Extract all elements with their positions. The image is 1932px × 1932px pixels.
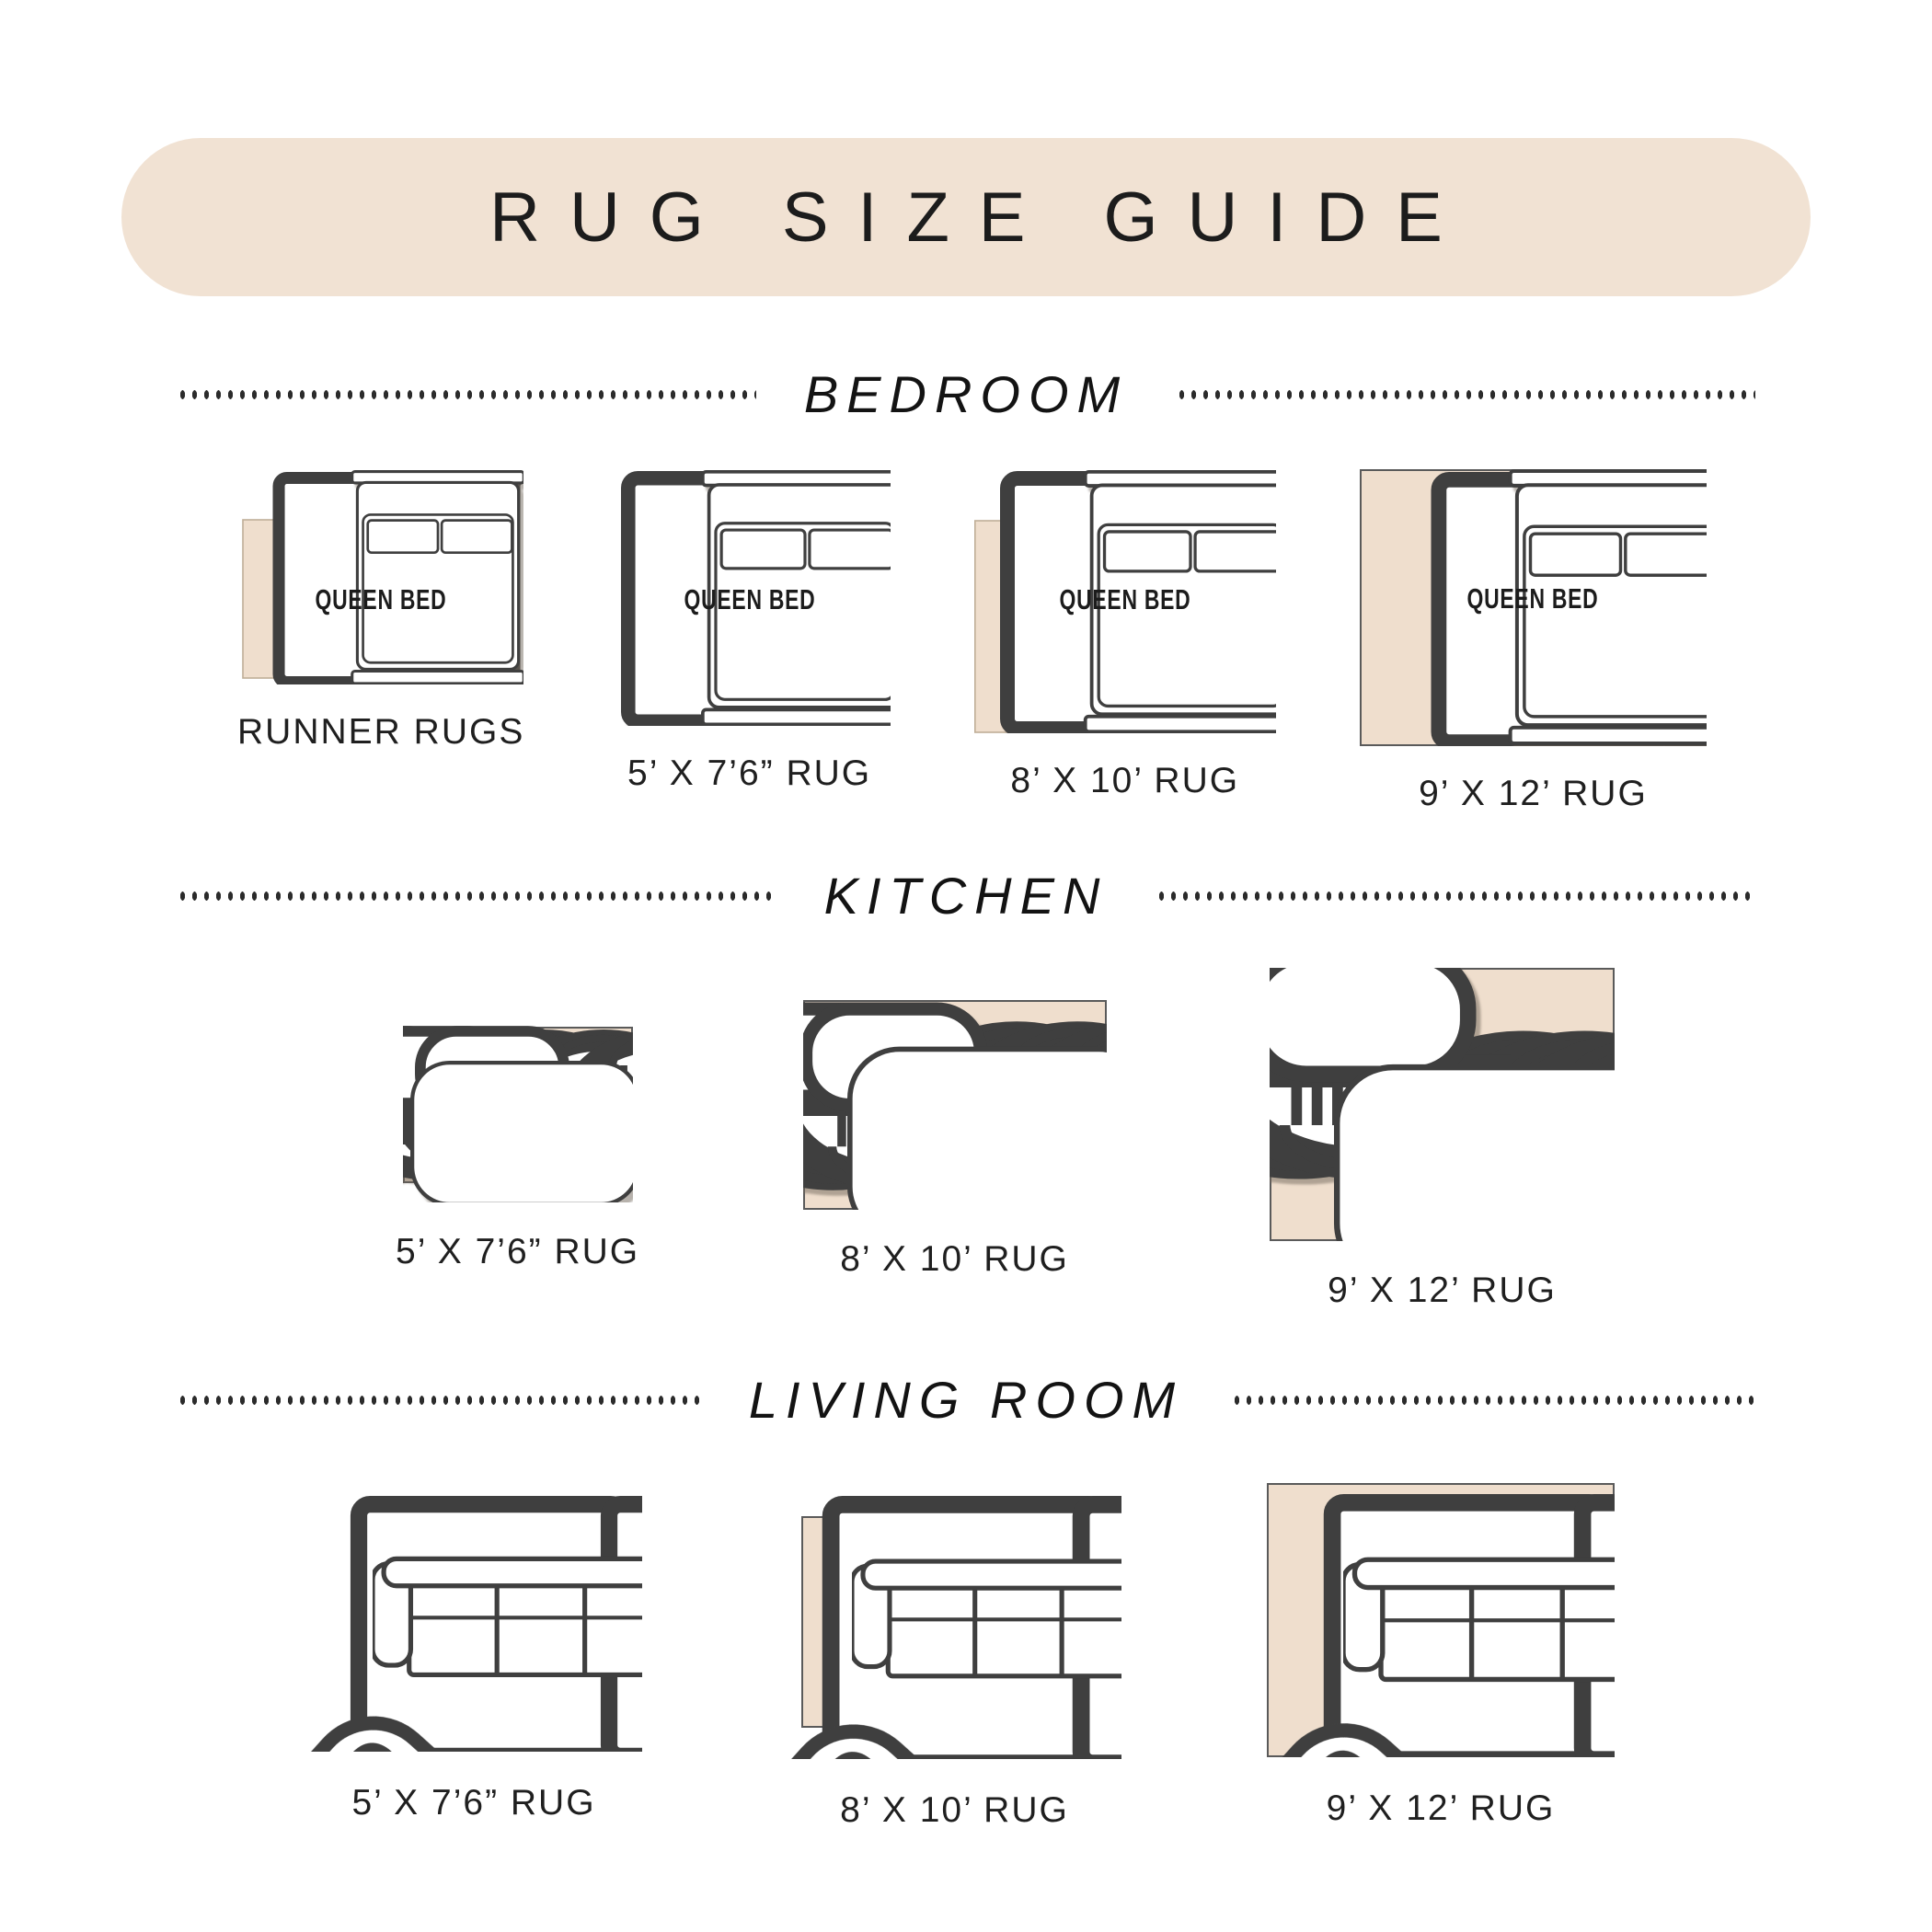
dotted-divider bbox=[177, 1395, 701, 1406]
sofa-icon bbox=[852, 1561, 1121, 1676]
kitchen-8x10-cell: 8’ X 10’ RUG bbox=[803, 1000, 1107, 1280]
bedroom-runner-diagram: QUEEN BED bbox=[238, 468, 523, 684]
diagram-label: RUNNER RUGS bbox=[237, 712, 524, 753]
living-5x76-cell: 5’ X 7’6” RUG bbox=[305, 1483, 642, 1823]
kitchen-8x10-diagram bbox=[803, 1000, 1107, 1210]
bedroom-9x12-diagram: QUEEN BED bbox=[1360, 468, 1707, 746]
bedroom-section-title: BEDROOM bbox=[804, 364, 1128, 424]
living-9x12-diagram bbox=[1267, 1483, 1615, 1757]
bedroom-9x12-cell: QUEEN BED 9’ X 12’ RUG bbox=[1360, 468, 1707, 814]
diagram-label: 5’ X 7’6” RUG bbox=[396, 1232, 639, 1272]
dotted-divider bbox=[177, 389, 756, 400]
bedroom-5x76-cell: QUEEN BED 5’ X 7’6” RUG bbox=[609, 468, 891, 794]
diagram-label: 9’ X 12’ RUG bbox=[1419, 774, 1648, 814]
dotted-divider bbox=[1176, 389, 1755, 400]
kitchen-section-title: KITCHEN bbox=[824, 866, 1109, 926]
header-banner: RUG SIZE GUIDE bbox=[121, 138, 1811, 296]
living-8x10-diagram bbox=[788, 1483, 1121, 1759]
dining-table-icon bbox=[849, 1049, 1106, 1210]
living-5x76-diagram bbox=[305, 1483, 642, 1752]
kitchen-5x76-diagram bbox=[403, 1007, 633, 1202]
bedroom-8x10-diagram: QUEEN BED bbox=[974, 468, 1276, 733]
kitchen-section-header: KITCHEN bbox=[177, 866, 1755, 926]
dining-table-icon bbox=[1337, 1067, 1615, 1241]
bed-label: QUEEN BED bbox=[684, 583, 815, 615]
diagram-label: 5’ X 7’6” RUG bbox=[627, 753, 871, 794]
sofa-icon bbox=[1343, 1559, 1615, 1679]
queen-bed-icon bbox=[352, 472, 523, 684]
bedroom-8x10-cell: QUEEN BED 8’ X 10’ RUG bbox=[974, 468, 1276, 801]
living-room-section-title: LIVING ROOM bbox=[749, 1370, 1183, 1430]
dining-table-icon bbox=[412, 1063, 633, 1202]
diagram-label: 9’ X 12’ RUG bbox=[1328, 1271, 1557, 1311]
diagram-label: 8’ X 10’ RUG bbox=[840, 1790, 1069, 1831]
diagram-label: 8’ X 10’ RUG bbox=[1010, 761, 1239, 801]
dotted-divider bbox=[1231, 1395, 1755, 1406]
bed-label: QUEEN BED bbox=[1466, 582, 1598, 615]
living-room-section-header: LIVING ROOM bbox=[177, 1370, 1755, 1430]
page-title: RUG SIZE GUIDE bbox=[489, 178, 1472, 258]
bedroom-row: QUEEN BED RUNNER RUGS QUEEN BED 5’ X 7’6… bbox=[237, 468, 1707, 814]
kitchen-5x76-cell: 5’ X 7’6” RUG bbox=[396, 1007, 639, 1272]
living-8x10-cell: 8’ X 10’ RUG bbox=[788, 1483, 1121, 1831]
bed-label: QUEEN BED bbox=[316, 583, 447, 615]
bed-label: QUEEN BED bbox=[1059, 583, 1190, 615]
kitchen-row: 5’ X 7’6” RUG 8’ X 10’ RUG bbox=[396, 968, 1615, 1311]
sofa-icon bbox=[373, 1558, 642, 1674]
living-room-row: 5’ X 7’6” RUG 8’ X 10’ RUG bbox=[305, 1483, 1615, 1831]
diagram-label: 8’ X 10’ RUG bbox=[840, 1239, 1069, 1280]
kitchen-9x12-diagram bbox=[1270, 968, 1615, 1241]
dotted-divider bbox=[177, 891, 776, 902]
kitchen-9x12-cell: 9’ X 12’ RUG bbox=[1270, 968, 1615, 1311]
living-9x12-cell: 9’ X 12’ RUG bbox=[1267, 1483, 1615, 1829]
rug-size-guide-page: RUG SIZE GUIDE BEDROOM QUEEN BED RUNNER … bbox=[0, 0, 1932, 1932]
diagram-label: 5’ X 7’6” RUG bbox=[351, 1783, 595, 1823]
diagram-label: 9’ X 12’ RUG bbox=[1327, 1788, 1556, 1829]
bedroom-runner-cell: QUEEN BED RUNNER RUGS bbox=[237, 468, 524, 753]
dotted-divider bbox=[1156, 891, 1755, 902]
bedroom-section-header: BEDROOM bbox=[177, 364, 1755, 424]
bedroom-5x76-diagram: QUEEN BED bbox=[609, 468, 891, 726]
